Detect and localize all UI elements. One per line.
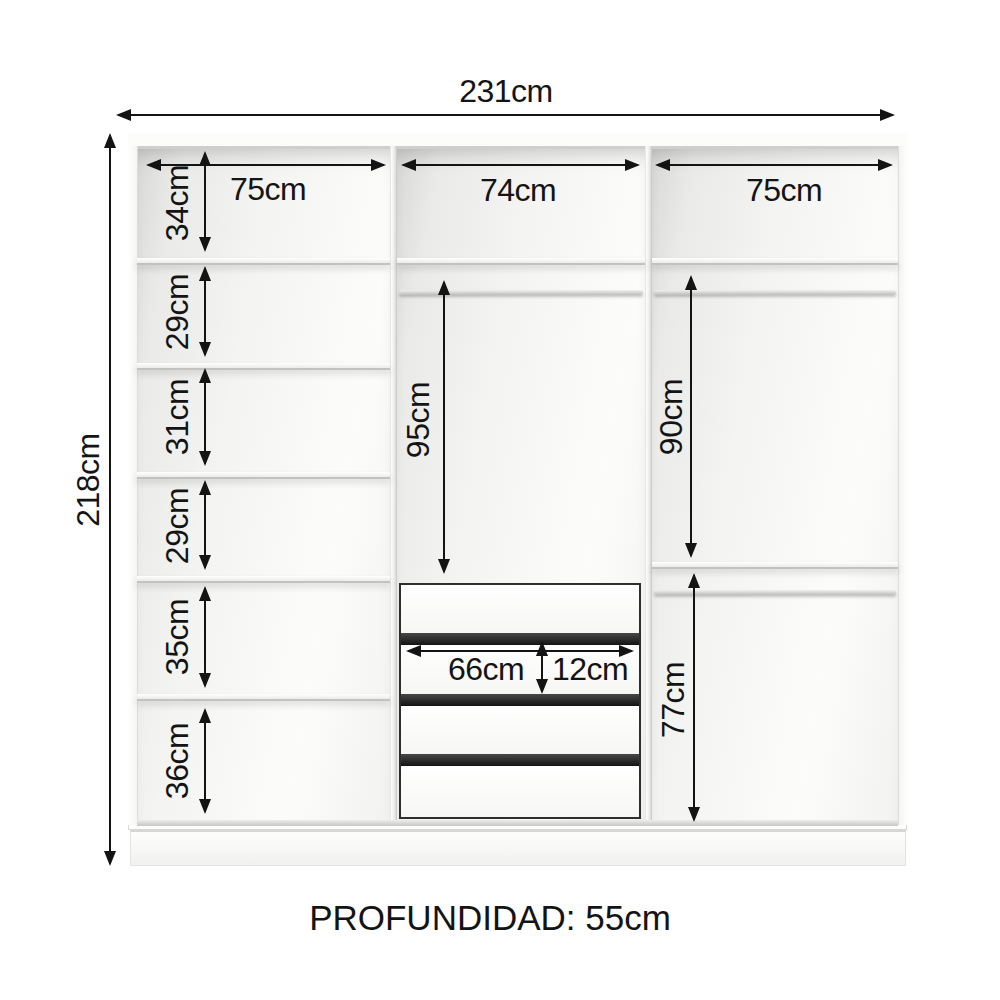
shelf-height-arrow-5 bbox=[204, 588, 206, 686]
hanging-height-label-middle: 95cm bbox=[400, 382, 437, 458]
shelf bbox=[652, 562, 898, 569]
drawer-height-arrow bbox=[541, 643, 543, 692]
shelf-height-label-1: 34cm bbox=[159, 165, 196, 241]
shelf-height-label-4: 29cm bbox=[159, 488, 196, 564]
shelf-height-label-2: 29cm bbox=[159, 274, 196, 350]
cabinet-base bbox=[130, 830, 906, 866]
overall-height-label: 218cm bbox=[70, 433, 107, 527]
section-width-label-left: 75cm bbox=[230, 171, 306, 208]
door-track bbox=[137, 146, 898, 149]
shelf-height-arrow-1 bbox=[204, 153, 206, 250]
shelf-height-arrow-2 bbox=[204, 268, 206, 355]
cabinet-floor bbox=[137, 820, 898, 826]
overall-width-label: 231cm bbox=[459, 73, 553, 110]
shelf-height-arrow-4 bbox=[204, 482, 206, 568]
section-width-label-middle: 74cm bbox=[480, 172, 556, 209]
cabinet-left-wall bbox=[128, 146, 138, 825]
overall-height-arrow bbox=[109, 135, 111, 864]
drawer-gap bbox=[401, 694, 639, 706]
shelf bbox=[137, 694, 390, 701]
shelf bbox=[137, 363, 390, 370]
drawer-unit bbox=[399, 583, 641, 819]
shelf bbox=[397, 258, 645, 265]
section-width-arrow-right bbox=[657, 164, 891, 166]
shelf-height-label-5: 35cm bbox=[159, 599, 196, 675]
drawer bbox=[401, 766, 639, 817]
hanging-height-label-right-top: 90cm bbox=[653, 379, 690, 455]
cabinet-top-panel bbox=[128, 133, 907, 147]
hanging-rod-middle bbox=[399, 290, 643, 295]
drawer-gap bbox=[401, 754, 639, 766]
shelf-height-arrow-6 bbox=[204, 710, 206, 812]
drawer-width-label: 66cm bbox=[448, 651, 524, 688]
section-width-arrow-middle bbox=[403, 164, 638, 166]
drawer-gap bbox=[401, 633, 639, 645]
overall-width-arrow bbox=[118, 114, 893, 116]
hanging-height-label-right-bottom: 77cm bbox=[655, 662, 692, 738]
hanging-height-arrow-right-top bbox=[690, 277, 692, 556]
drawer bbox=[401, 585, 639, 633]
shelf-height-label-3: 31cm bbox=[159, 379, 196, 455]
cabinet-right-wall bbox=[898, 146, 908, 825]
drawer bbox=[401, 706, 639, 754]
shelf bbox=[137, 576, 390, 583]
wardrobe-dimension-diagram: 231cm 218cm 75cm 74cm 75cm bbox=[0, 0, 1000, 1000]
depth-label: PROFUNDIDAD: 55cm bbox=[309, 898, 671, 938]
shelf-height-label-6: 36cm bbox=[159, 723, 196, 799]
cabinet-left-column-interior bbox=[137, 149, 390, 820]
drawer-height-label: 12cm bbox=[552, 651, 628, 688]
hanging-rod-right-bottom bbox=[654, 590, 896, 595]
column-divider-left bbox=[390, 146, 397, 825]
shelf-height-arrow-3 bbox=[204, 370, 206, 464]
shelf bbox=[137, 258, 390, 265]
column-divider-right bbox=[645, 146, 652, 825]
hanging-height-arrow-right-bottom bbox=[693, 575, 695, 820]
section-width-label-right: 75cm bbox=[746, 172, 822, 209]
shelf bbox=[652, 258, 898, 265]
hanging-height-arrow-middle bbox=[443, 282, 445, 572]
shelf bbox=[137, 472, 390, 479]
